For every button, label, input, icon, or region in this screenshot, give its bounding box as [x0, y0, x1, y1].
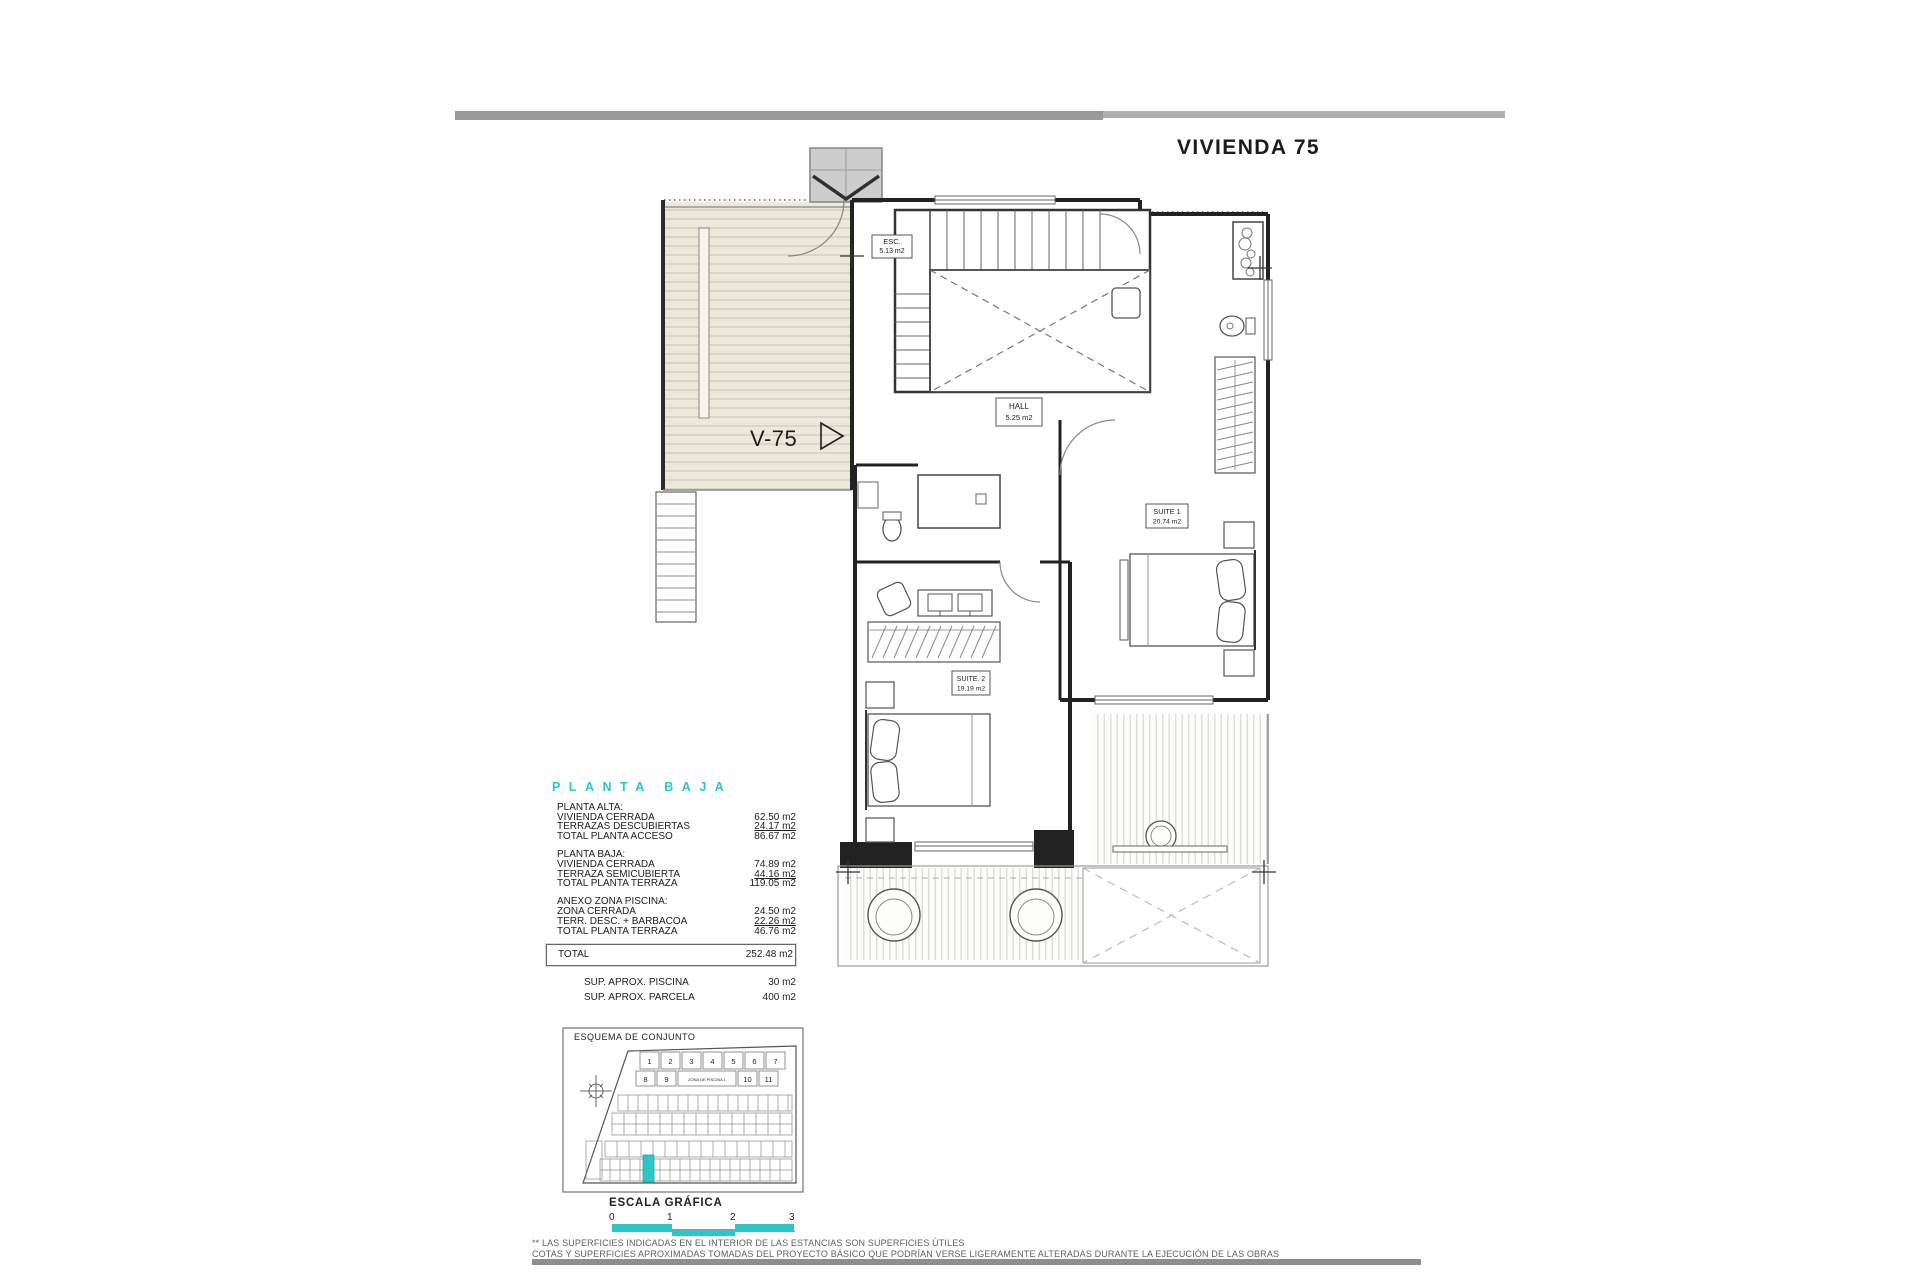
plot-number: 9	[664, 1075, 668, 1084]
scale-tick: 3	[789, 1212, 795, 1223]
areas-group-planta-alta: PLANTA ALTA: VIVIENDA CERRADA62.50 m2 TE…	[546, 803, 796, 842]
scale-bar-baseline	[612, 1231, 795, 1232]
esc-room-name: ESC.	[883, 237, 901, 246]
areas-group-planta-baja: PLANTA BAJA: VIVIENDA CERRADA74.89 m2 TE…	[546, 850, 796, 889]
footer-note-line2: COTAS Y SUPERFICIES APROXIMADAS TOMADAS …	[532, 1249, 1279, 1260]
area-label: TOTAL PLANTA ACCESO	[557, 832, 673, 842]
scale-tick: 0	[609, 1212, 615, 1223]
bed-suite1	[1120, 522, 1255, 676]
plot-number: 7	[773, 1057, 777, 1066]
plot-number: 3	[689, 1057, 693, 1066]
desk-and-armchair	[875, 580, 992, 617]
highlighted-unit-v75	[643, 1155, 654, 1182]
area-value: 86.67 m2	[754, 832, 796, 842]
plot-row-2: 8 9 ZONA DE PISCINA 1 10 11	[636, 1071, 778, 1086]
area-label: SUP. APROX. PARCELA	[584, 993, 695, 1003]
footer-notes: ** LAS SUPERFICIES INDICADAS EN EL INTER…	[532, 1238, 1279, 1259]
plot-number: 2	[668, 1057, 672, 1066]
plot-number: 4	[710, 1057, 714, 1066]
plot-row-1: 1 2 3 4 5 6 7	[640, 1052, 785, 1069]
plan-section-title: PLANTA BAJA	[552, 783, 796, 793]
scale-tick-labels: 0 1 2 3	[609, 1212, 809, 1223]
area-row: TOTAL PLANTA TERRAZA46.76 m2	[546, 927, 796, 937]
scale-bar-segment	[612, 1224, 672, 1231]
compass-icon	[580, 1075, 612, 1107]
suite1-room-name: SUITE 1	[1153, 507, 1180, 516]
area-value: 400 m2	[763, 993, 796, 1003]
top-border-bar-light	[1103, 111, 1505, 118]
bed-suite2	[866, 682, 990, 842]
top-border-bar	[455, 111, 1103, 120]
scale-header: ESCALA GRÁFICA	[609, 1197, 723, 1209]
plot-number: 5	[731, 1057, 735, 1066]
wardrobe-suite1	[1215, 357, 1255, 473]
plot-number: 10	[743, 1075, 751, 1084]
site-plan: ESQUEMA DE CONJUNTO 1 2 3 4 5 6 7 8 9 ZO…	[560, 1025, 810, 1195]
site-plan-frame	[563, 1028, 803, 1192]
areas-group-anexo-piscina: ANEXO ZONA PISCINA: ZONA CERRADA24.50 m2…	[546, 897, 796, 936]
footer-note-line1: ** LAS SUPERFICIES INDICADAS EN EL INTER…	[532, 1238, 1279, 1249]
area-value: 119.05 m2	[749, 879, 796, 889]
entry-arrow	[810, 148, 882, 202]
plot-number: 1	[647, 1057, 651, 1066]
unit-label: V-75	[750, 426, 797, 451]
wardrobe-suite2	[868, 622, 1000, 662]
total-row: TOTAL 252.48 m2	[546, 944, 796, 966]
plot-number: 6	[752, 1057, 756, 1066]
suite2-room-area: 19.19 m2	[957, 686, 986, 693]
area-label: TOTAL PLANTA TERRAZA	[557, 879, 678, 889]
esc-room-area: 5.13 m2	[879, 248, 904, 255]
total-label: TOTAL	[558, 950, 589, 960]
area-value: 30 m2	[768, 978, 796, 988]
extra-areas: SUP. APROX. PISCINA30 m2 SUP. APROX. PAR…	[546, 978, 796, 1003]
area-row: TOTAL PLANTA ACCESO86.67 m2	[546, 832, 796, 842]
suite1-room-area: 20.74 m2	[1153, 519, 1182, 526]
areas-panel: PLANTA BAJA PLANTA ALTA: VIVIENDA CERRAD…	[546, 783, 796, 1003]
hall-room-area: 5.25 m2	[1005, 413, 1032, 422]
unit-arrow-icon	[821, 423, 843, 449]
hall-room-name: HALL	[1009, 402, 1030, 411]
scale-bar-segment	[735, 1224, 794, 1231]
suite2-room-name: SUITE. 2	[957, 676, 986, 683]
unit-tag: V-75	[750, 423, 843, 451]
pool-zone-label: ZONA DE PISCINA 1	[688, 1077, 727, 1082]
area-label: SUP. APROX. PISCINA	[584, 978, 689, 988]
area-label: TOTAL PLANTA TERRAZA	[557, 927, 678, 937]
scale-tick: 2	[730, 1212, 736, 1223]
scale-tick: 1	[667, 1212, 673, 1223]
plot-number: 11	[765, 1075, 773, 1084]
bathroom-2-fixtures	[858, 475, 1000, 541]
area-value: 46.76 m2	[754, 927, 796, 937]
plot-number: 8	[643, 1075, 647, 1084]
bottom-border-bar	[532, 1259, 1421, 1265]
area-row: SUP. APROX. PISCINA30 m2	[546, 978, 796, 988]
area-row: TOTAL PLANTA TERRAZA119.05 m2	[546, 879, 796, 889]
site-unit-bands	[586, 1095, 792, 1181]
exterior-stair	[656, 492, 696, 622]
plan-sheet: { "accent": "#2cc6c6", "title": "VIVIEND…	[0, 0, 1920, 1280]
area-row: SUP. APROX. PARCELA400 m2	[546, 993, 796, 1003]
site-plan-header: ESQUEMA DE CONJUNTO	[574, 1032, 695, 1042]
total-value: 252.48 m2	[746, 950, 793, 960]
